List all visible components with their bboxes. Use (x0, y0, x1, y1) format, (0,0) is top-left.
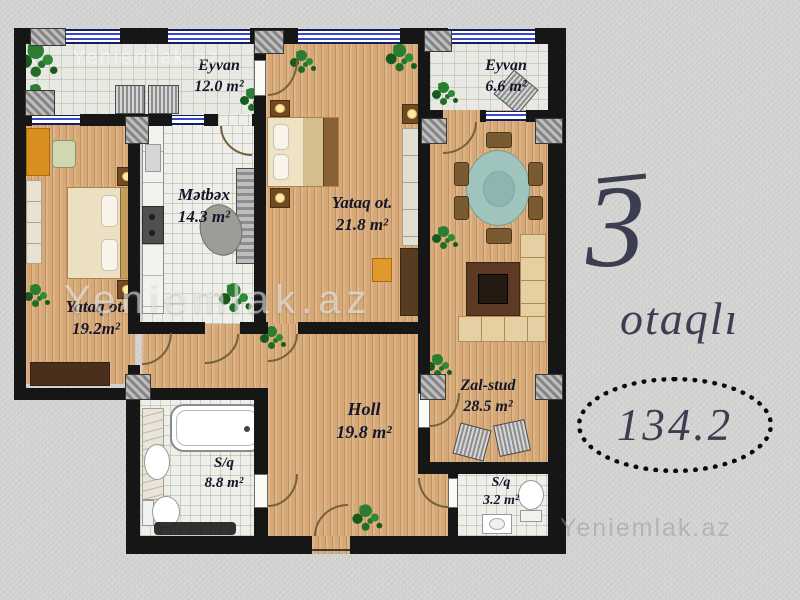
room-area: 19.8 m² (310, 421, 418, 444)
room-name: S/q (176, 454, 272, 474)
room-label-eyvan-right: Eyvan 6.6 m² (460, 56, 552, 98)
plant-icon (430, 80, 456, 106)
room-area: 19.2m² (40, 318, 152, 340)
door-opening (218, 114, 252, 126)
column (25, 90, 55, 116)
wall (14, 28, 26, 388)
room-name: Eyvan (164, 56, 274, 77)
coffee-table-icon (478, 274, 508, 304)
apartment-floor-plan: Eyvan 12.0 m² Eyvan 6.6 m² Yataq ot. 19.… (14, 28, 566, 554)
chair-icon (528, 162, 543, 186)
entry-porch (312, 536, 350, 554)
plant-icon (350, 502, 380, 532)
chair-icon (486, 228, 512, 244)
dining-table-icon (466, 150, 530, 226)
room-name: Zal-stud (432, 376, 544, 397)
side-table-icon (52, 140, 76, 168)
room-name: Yataq ot. (40, 296, 152, 318)
pillow (273, 124, 289, 150)
rug-icon (30, 362, 110, 386)
watermark-text: Yeniemlak.az (560, 514, 732, 543)
window (298, 29, 400, 44)
room-area: 3.2 m² (464, 492, 538, 510)
room-name: Holl (310, 398, 418, 421)
chair-icon (454, 196, 469, 220)
wall (126, 388, 140, 554)
nightstand-lamp-icon (270, 188, 290, 208)
headboard (323, 118, 338, 186)
total-area-badge: 134.2 (577, 377, 773, 473)
entry-step-line (312, 549, 350, 551)
column (30, 28, 66, 46)
column (125, 116, 149, 144)
window (172, 115, 204, 125)
room-area: 12.0 m² (164, 77, 274, 98)
room-name: Yataq ot. (302, 192, 422, 214)
chair-icon (528, 196, 543, 220)
pillow (101, 195, 118, 227)
sofa-icon (458, 316, 546, 342)
wall (240, 322, 268, 334)
wall (418, 462, 548, 474)
wall (298, 322, 428, 334)
bed-icon (67, 187, 135, 279)
sink-icon (482, 514, 512, 534)
door-leaf (448, 478, 458, 508)
wall (548, 28, 566, 554)
room-area: 8.8 m² (176, 474, 272, 494)
room-label-holl: Holl 19.8 m² (310, 398, 418, 445)
room-label-eyvan-left: Eyvan 12.0 m² (164, 56, 274, 98)
plant-icon (430, 224, 456, 250)
floor-plan-page: Eyvan 12.0 m² Eyvan 6.6 m² Yataq ot. 19.… (0, 0, 800, 600)
wall (120, 28, 168, 44)
toilet-icon (520, 510, 542, 522)
room-label-yataq-left: Yataq ot. 19.2m² (40, 296, 152, 340)
plant-icon (383, 41, 414, 72)
room-label-sq-small: S/q 3.2 m² (464, 474, 538, 510)
column (424, 30, 452, 52)
room-area: 21.8 m² (302, 214, 422, 236)
room-name: Mətbəx (154, 184, 254, 206)
room-label-metbex: Mətbəx 14.3 m² (154, 184, 254, 228)
chair-icon (454, 162, 469, 186)
bench-icon (115, 85, 145, 114)
pillow (101, 239, 118, 271)
nightstand-icon (372, 258, 392, 282)
room-label-sq-large: S/q 8.8 m² (176, 454, 272, 493)
column (125, 374, 151, 400)
wardrobe-icon (26, 128, 50, 176)
kitchen-sink-icon (145, 144, 161, 172)
nightstand-lamp-icon (270, 100, 290, 117)
bath-mat-icon (154, 522, 236, 535)
column (254, 30, 284, 54)
room-area: 14.3 m² (154, 206, 254, 228)
room-name: Eyvan (460, 56, 552, 77)
window (32, 115, 80, 125)
dresser-icon (26, 180, 42, 264)
window (448, 29, 535, 44)
radiator-icon (493, 419, 531, 457)
window (168, 29, 250, 44)
room-name: S/q (464, 474, 538, 492)
window (486, 111, 526, 121)
room-label-zal-stud: Zal-stud 28.5 m² (432, 376, 544, 418)
wall (254, 96, 266, 324)
rooms-word: otaqlı (620, 296, 739, 342)
wall (350, 536, 566, 554)
room-area: 6.6 m² (460, 77, 552, 98)
room-area: 28.5 m² (432, 397, 544, 418)
blanket (303, 118, 323, 186)
wall (204, 114, 218, 126)
bathtub-icon (170, 404, 264, 452)
chair-icon (486, 132, 512, 148)
total-area-value: 134.2 (617, 403, 733, 448)
rooms-count: 3 (586, 168, 645, 286)
wall (126, 536, 312, 554)
bed-icon (267, 117, 339, 187)
column (535, 118, 563, 144)
room-label-yataq-center: Yataq ot. 21.8 m² (302, 192, 422, 236)
pillow (273, 154, 289, 180)
plant-icon (217, 281, 250, 314)
wall (254, 508, 268, 554)
sink-icon (144, 444, 170, 480)
